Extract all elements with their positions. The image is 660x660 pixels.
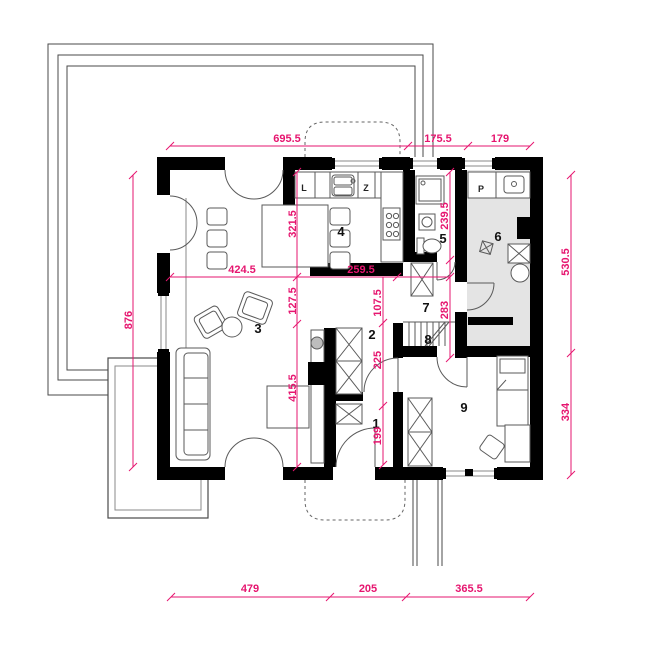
floor-plan: L Z P (0, 0, 660, 660)
bed (497, 356, 528, 426)
room-label-8: 8 (424, 332, 431, 347)
dim-bottom-right: 365.5 (455, 583, 483, 595)
dim-right-upper: 530.5 (560, 248, 572, 276)
dim-passage-height: 127.5 (287, 287, 299, 315)
desk (505, 425, 530, 462)
dim-entry-height: 199 (372, 427, 384, 445)
fridge-label: L (301, 183, 307, 193)
dim-kitchen-width: 259.5 (347, 264, 375, 276)
roof-canopy-top (305, 122, 400, 157)
dim-bottom-left: 479 (241, 583, 259, 595)
dim-bath-height: 239.5 (439, 202, 451, 230)
dim-top-main: 695.5 (273, 133, 301, 145)
room-label-7: 7 (422, 300, 429, 315)
room-label-4: 4 (337, 224, 345, 239)
dim-dining-width: 424.5 (228, 264, 256, 276)
dim-bottom-mid: 205 (359, 583, 377, 595)
room-label-5: 5 (439, 231, 446, 246)
kitchen-sink (332, 175, 355, 196)
dim-left-outer: 876 (123, 311, 135, 329)
entrance-walkway (413, 480, 442, 566)
boiler (511, 264, 529, 282)
room-label-6: 6 (494, 229, 501, 244)
utility-cabinet (508, 244, 530, 263)
dim-top-mid: 175.5 (424, 133, 452, 145)
dim-hall-mid: 225 (372, 351, 384, 369)
toilet (417, 238, 441, 254)
dim-stairhall-height: 283 (439, 301, 451, 319)
roof-canopy-entrance (305, 480, 405, 520)
sofa (176, 348, 210, 460)
dim-top-right: 179 (491, 133, 509, 145)
washer-label: P (478, 184, 484, 194)
side-table (222, 317, 242, 337)
dim-right-lower: 334 (560, 402, 572, 421)
room-label-9: 9 (460, 400, 467, 415)
bedroom-wardrobe (408, 398, 432, 466)
dim-living-height: 415.5 (287, 374, 299, 402)
washbasin (419, 214, 435, 230)
dim-hall-upper: 107.5 (372, 289, 384, 317)
shower (416, 176, 444, 204)
sink-label: Z (363, 183, 369, 193)
dim-kitchen-height: 321.5 (287, 210, 299, 238)
room-label-3: 3 (254, 321, 261, 336)
room-label-2: 2 (368, 327, 375, 342)
